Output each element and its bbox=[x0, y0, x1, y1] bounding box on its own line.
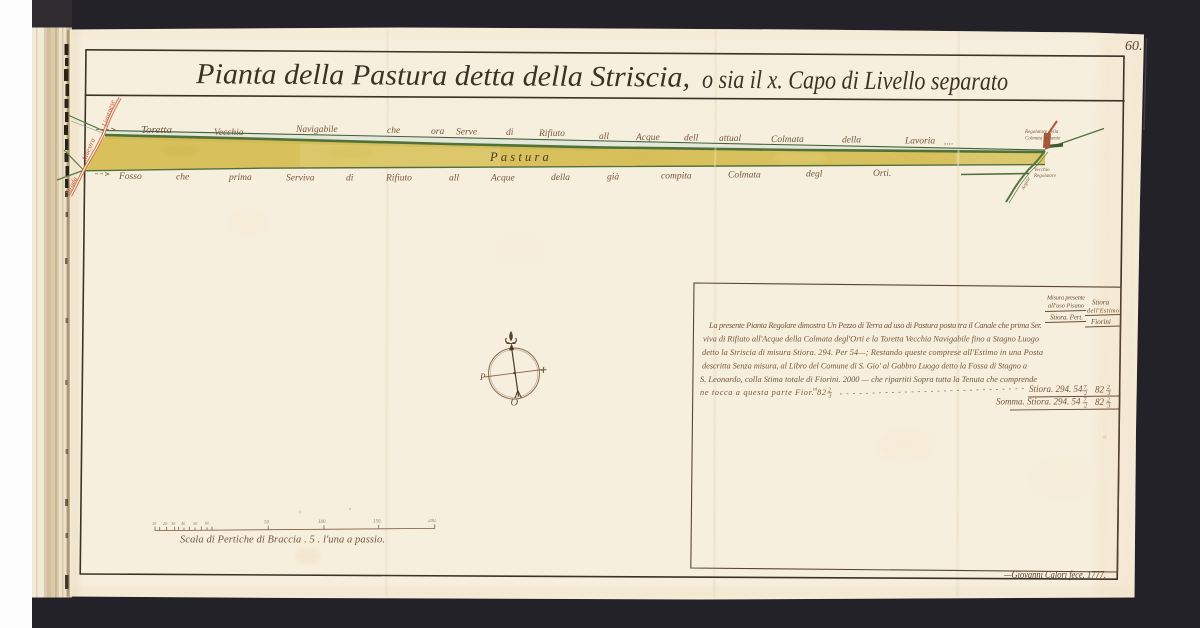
svg-text:Serve: Serve bbox=[456, 128, 477, 138]
svg-text:O: O bbox=[511, 398, 519, 409]
svg-text:detto la Striscia di misura St: detto la Striscia di misura Stiora. 294.… bbox=[702, 348, 1043, 357]
svg-text:Serviva: Serviva bbox=[286, 174, 315, 184]
svg-text:Somma. Stiora. 294. 54: Somma. Stiora. 294. 54 bbox=[996, 397, 1081, 407]
svg-text:Acque: Acque bbox=[635, 133, 660, 143]
svg-text:Fiorini: Fiorini bbox=[1090, 318, 1111, 326]
svg-text:Acque: Acque bbox=[490, 174, 515, 184]
svg-text:Toretta: Toretta bbox=[141, 124, 172, 136]
svg-text:Pianta della Pastura detta del: Pianta della Pastura detta della Strisci… bbox=[195, 58, 690, 93]
svg-text:Fosso: Fosso bbox=[118, 172, 142, 182]
svg-text:Rifiuto: Rifiuto bbox=[538, 128, 565, 139]
svg-text:dell: dell bbox=[684, 134, 699, 144]
svg-text:150.: 150. bbox=[373, 520, 382, 525]
svg-text:Stiora. 294. 54: Stiora. 294. 54 bbox=[1029, 384, 1083, 394]
svg-text:all: all bbox=[599, 132, 609, 142]
svg-text:82: 82 bbox=[1095, 385, 1105, 395]
svg-text:o sia il x. Capo di Livello se: o sia il x. Capo di Livello separato bbox=[702, 65, 1008, 96]
svg-text:P: P bbox=[479, 372, 486, 382]
svg-text:82: 82 bbox=[1095, 397, 1105, 407]
svg-text:200.: 200. bbox=[428, 519, 437, 524]
svg-text:Lavoria: Lavoria bbox=[904, 137, 935, 147]
svg-text:Colmata presente: Colmata presente bbox=[1025, 137, 1061, 142]
svg-text:Regolatore della: Regolatore della bbox=[1024, 130, 1059, 135]
svg-text:descritta Senza misura, al Lib: descritta Senza misura, al Libro del Com… bbox=[702, 362, 1027, 371]
svg-text:di: di bbox=[506, 128, 514, 138]
svg-text:100.: 100. bbox=[318, 520, 327, 525]
svg-text:all: all bbox=[449, 174, 459, 184]
svg-text:Navigabile: Navigabile bbox=[295, 125, 338, 135]
svg-text:che: che bbox=[176, 173, 189, 183]
svg-text:—Giovanni Calori fece. 1777.: —Giovanni Calori fece. 1777. bbox=[1003, 570, 1106, 581]
svg-text:3: 3 bbox=[828, 394, 832, 400]
svg-text:Orti.: Orti. bbox=[873, 169, 891, 179]
svg-text:che: che bbox=[387, 126, 400, 136]
svg-text:Stiora. Pert.: Stiora. Pert. bbox=[1050, 314, 1083, 322]
svg-text:Vecchia: Vecchia bbox=[214, 128, 244, 138]
svg-text:ora: ora bbox=[431, 127, 444, 137]
svg-text:3: 3 bbox=[1107, 404, 1111, 410]
svg-text:Regolatore: Regolatore bbox=[1033, 174, 1057, 179]
svg-text:compita: compita bbox=[661, 172, 692, 182]
svg-text:2: 2 bbox=[1084, 404, 1087, 410]
svg-text:di: di bbox=[346, 174, 354, 184]
svg-text:....: .... bbox=[944, 138, 954, 148]
svg-text:60.: 60. bbox=[1125, 39, 1143, 54]
svg-text:prima: prima bbox=[228, 173, 252, 183]
svg-text:della: della bbox=[551, 173, 570, 183]
svg-text:Misura presente: Misura presente bbox=[1046, 295, 1085, 302]
svg-text:Rifiuto: Rifiuto bbox=[385, 173, 412, 184]
svg-text:all'uso Pisano: all'uso Pisano bbox=[1048, 303, 1084, 310]
svg-text:già: già bbox=[607, 173, 619, 183]
svg-text:degl: degl bbox=[806, 170, 823, 180]
svg-text:50.: 50. bbox=[264, 521, 270, 526]
svg-text:La presente Pianta Regolare di: La presente Pianta Regolare dimostra Un … bbox=[708, 321, 1042, 330]
svg-text:ni: ni bbox=[813, 387, 818, 393]
svg-text:S. Leonardo, colla Stima total: S. Leonardo, colla Stima totale di Fiori… bbox=[700, 375, 1037, 384]
svg-text:dell'Estimo: dell'Estimo bbox=[1087, 308, 1119, 315]
svg-text:Stiora: Stiora bbox=[1092, 299, 1110, 307]
svg-text:Scala di Pertiche di Bracc: Scala di Pertiche di Braccia . 5 . l'una… bbox=[180, 535, 385, 546]
svg-text:viva di Rifiuto all'Acque dell: viva di Rifiuto all'Acque della Colmata … bbox=[703, 335, 1039, 344]
svg-text:Colmata: Colmata bbox=[771, 135, 804, 145]
svg-text:della: della bbox=[842, 136, 861, 146]
svg-text:ne tocca a questa parte Fior.: ne tocca a questa parte Fior. 82 bbox=[700, 388, 826, 397]
svg-text:attual: attual bbox=[719, 134, 742, 144]
svg-text:Pastura: Pastura bbox=[489, 150, 552, 164]
svg-text:Vecchio: Vecchio bbox=[1034, 168, 1050, 173]
svg-text:Colmata: Colmata bbox=[728, 171, 761, 181]
